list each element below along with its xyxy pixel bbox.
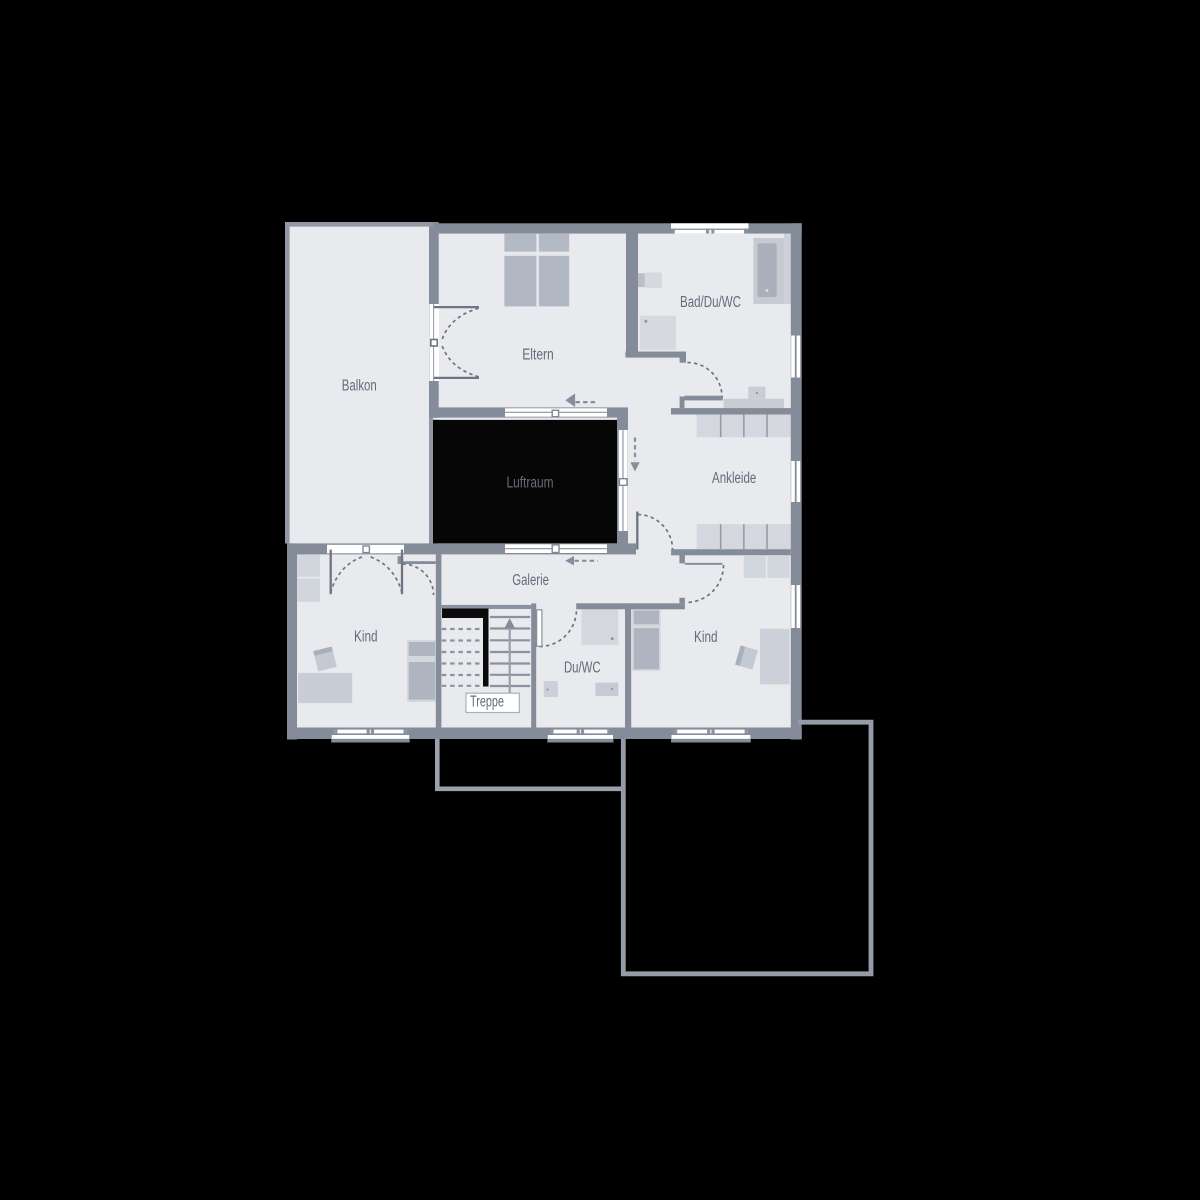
svg-text:Luftraum: Luftraum — [507, 475, 554, 492]
svg-text:Kind: Kind — [354, 629, 378, 646]
svg-text:Ankleide: Ankleide — [712, 470, 756, 487]
svg-text:Balkon: Balkon — [342, 378, 377, 395]
svg-text:Du/WC: Du/WC — [564, 660, 601, 677]
svg-text:Eltern: Eltern — [522, 347, 554, 364]
svg-text:Galerie: Galerie — [512, 572, 549, 589]
svg-text:Treppe: Treppe — [470, 694, 504, 711]
svg-text:Bad/Du/WC: Bad/Du/WC — [680, 294, 741, 311]
svg-text:Kind: Kind — [694, 629, 718, 646]
